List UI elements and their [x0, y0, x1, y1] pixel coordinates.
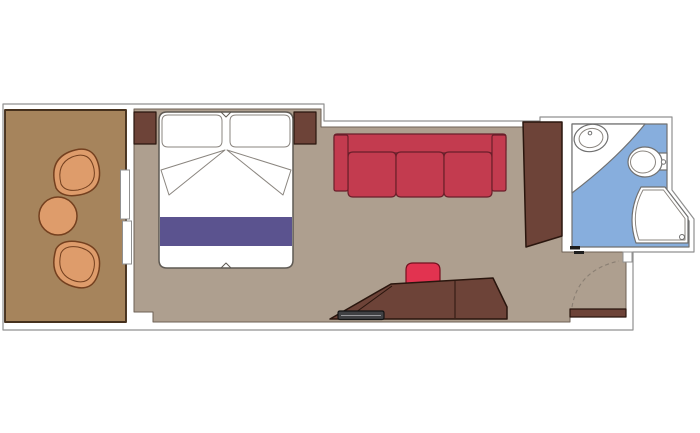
sofa-back: [334, 134, 506, 153]
bathroom-door-track-1: [570, 246, 580, 250]
sofa-armrest-left: [334, 135, 348, 191]
sliding-door-panel-2: [123, 221, 132, 264]
sofa-armrest-right: [492, 135, 506, 191]
entry-door-leaf: [570, 309, 626, 317]
bathroom-door-track-2: [574, 251, 584, 254]
floor-plan: [0, 0, 700, 433]
balcony-table: [39, 197, 77, 235]
sink-faucet-icon: [588, 131, 592, 135]
sofa-seat-2: [396, 152, 444, 197]
shower-drain-icon: [680, 235, 685, 240]
sliding-door-panel-1: [121, 170, 130, 219]
toilet-flush-button: [661, 160, 665, 164]
sofa-seat-3: [444, 152, 492, 197]
wardrobe: [523, 122, 562, 247]
sofa-seat-1: [348, 152, 396, 197]
nightstand-left: [134, 112, 156, 144]
pillow-right: [230, 115, 290, 147]
nightstand-right: [294, 112, 316, 144]
pillow-left: [162, 115, 222, 147]
bed-runner: [160, 217, 292, 246]
entry-door-jamb: [623, 252, 632, 262]
floor-plan-drawing: [0, 0, 700, 433]
